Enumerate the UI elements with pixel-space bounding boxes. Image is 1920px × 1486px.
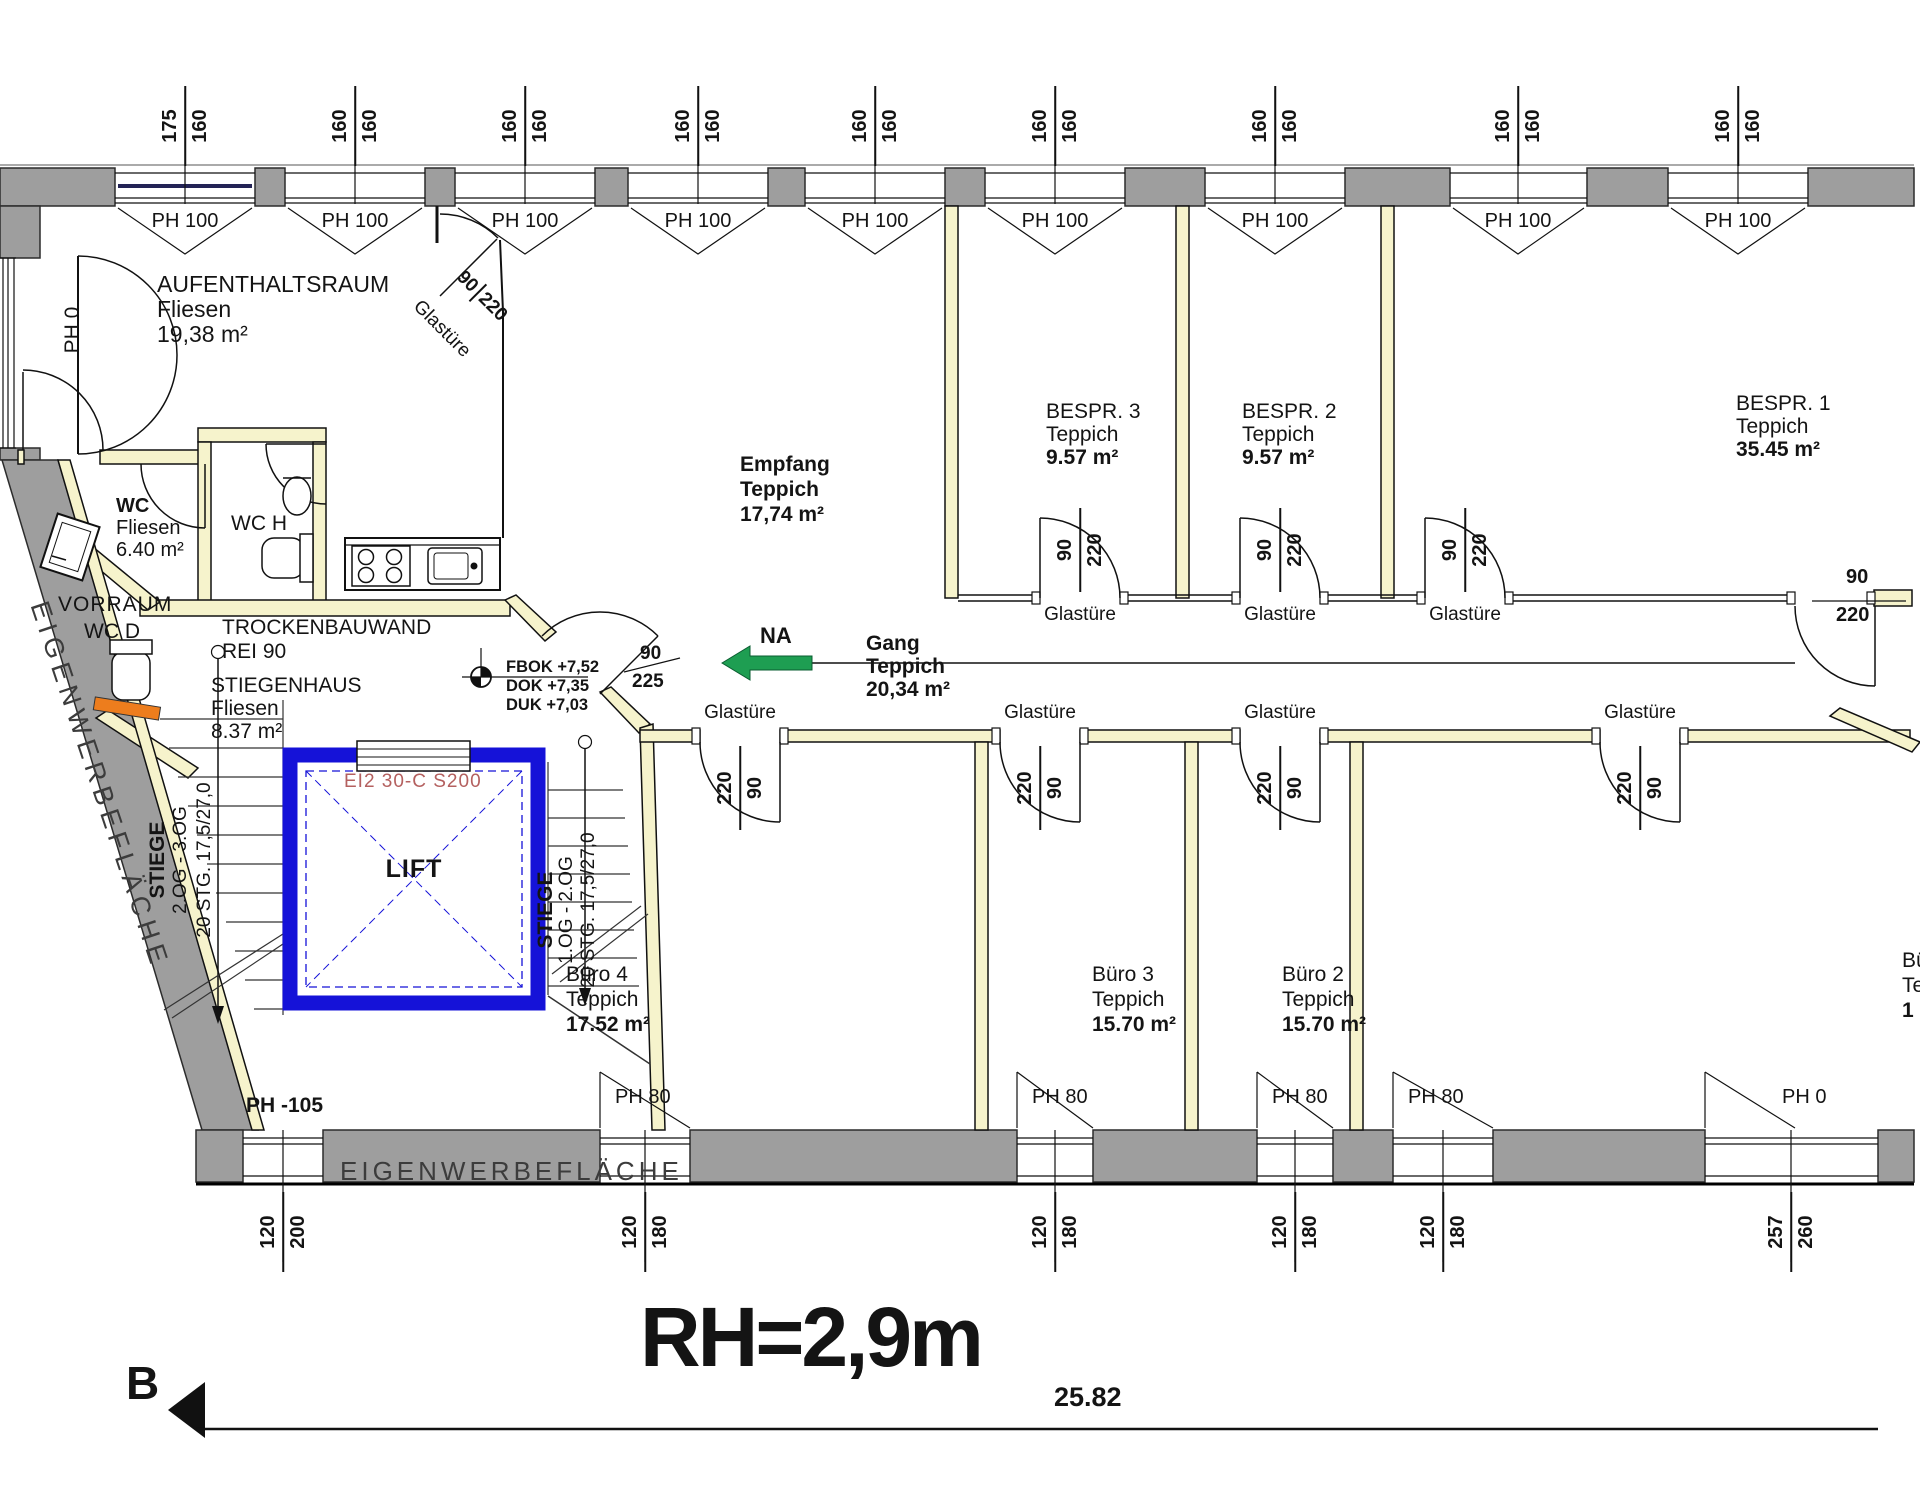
glastuere-label: Glastüre (680, 702, 800, 724)
room-label-buero1-clipped: Büro 1Teppich1 (1902, 948, 1920, 1023)
lift-fire-rating: EI2 30-C S200 (344, 770, 482, 793)
window-dim: 160160 (670, 86, 726, 166)
window-dim: 257260 (1763, 1192, 1819, 1272)
room-label-gang: GangTeppich20,34 m² (866, 632, 950, 701)
door-dim: 22090 (1612, 746, 1668, 830)
window-ph-label: PH 100 (1468, 210, 1568, 233)
window-dim: 160160 (1710, 86, 1766, 166)
vorraum-door (23, 370, 103, 450)
door-dim: 90220 (1437, 508, 1493, 592)
escape-label: NA (760, 624, 792, 647)
window-ph-label: PH -105 (246, 1094, 323, 1118)
stiegenhaus-door-dim-b: 225 (632, 670, 664, 693)
window-ph-label: PH 80 (1032, 1086, 1088, 1109)
glastuere-label: Glastüre (1020, 604, 1140, 626)
trockenbauwand-label: TROCKENBAUWANDREI 90 (222, 616, 431, 664)
stiegenhaus-door-dim-a: 90 (640, 642, 661, 665)
door-dim: 90220 (1052, 508, 1108, 592)
window-ph-label: PH 100 (648, 210, 748, 233)
door-dim: 22090 (1252, 746, 1308, 830)
room-label-bespr2: BESPR. 2Teppich9.57 m² (1242, 400, 1337, 469)
window-dim: 120180 (1027, 1192, 1083, 1272)
room-label-vorraum: VORRAUM (58, 593, 172, 616)
gang-end-dim-b: 220 (1836, 604, 1869, 627)
section-letter: B (126, 1372, 159, 1395)
window-dim: 120180 (617, 1192, 673, 1272)
kitchen (345, 538, 500, 590)
levels-label: FBOK +7,52DOK +7,35DUK +7,03 (506, 658, 599, 715)
stair-right-flight: 1.OG - 2.OG (556, 770, 578, 1050)
window-ph-label: PH 100 (475, 210, 575, 233)
wch-toilet-icon (262, 538, 304, 578)
window-dim: 160160 (847, 86, 903, 166)
window-ph-label: PH 80 (615, 1086, 671, 1109)
entry-door-label: PH 0 (61, 290, 83, 370)
window-ph-label: PH 0 (1782, 1086, 1826, 1109)
window-ph-label: PH 100 (1688, 210, 1788, 233)
glastuere-label: Glastüre (1220, 702, 1340, 724)
room-height-note: RH=2,9m (640, 1292, 981, 1382)
glastuere-label: Glastüre (1405, 604, 1525, 626)
window-dim: 175160 (157, 86, 213, 166)
room-label-empfang: EmpfangTeppich17,74 m² (740, 452, 830, 527)
room-label-bespr3: BESPR. 3Teppich9.57 m² (1046, 400, 1141, 469)
window-ph-label: PH 80 (1408, 1086, 1464, 1109)
glastuere-label: Glastüre (1220, 604, 1340, 626)
room-label-wc-d: WC D (84, 620, 140, 643)
total-dimension: 25.82 (1054, 1386, 1122, 1409)
window-ph-label: PH 100 (135, 210, 235, 233)
room-label-bespr1: BESPR. 1Teppich35.45 m² (1736, 392, 1831, 461)
room-label-wc-h: WC H (231, 512, 287, 535)
door-dim: 22090 (712, 746, 768, 830)
urinal-icon (283, 477, 311, 515)
room-label-buero2: Büro 2Teppich15.70 m² (1282, 962, 1366, 1037)
window-dim: 120180 (1267, 1192, 1323, 1272)
window-dim: 120200 (255, 1192, 311, 1272)
lift-label: LIFT (354, 858, 474, 881)
door-dim: 90220 (1252, 508, 1308, 592)
window-dim: 160160 (327, 86, 383, 166)
window-ph-label: PH 100 (305, 210, 405, 233)
room-label-aufenthaltsraum: AUFENTHALTSRAUMFliesen19,38 m² (157, 272, 389, 347)
window-ph-label: PH 100 (1225, 210, 1325, 233)
stair-right-name: STIEGE (534, 770, 556, 1050)
window-ph-label: PH 80 (1272, 1086, 1328, 1109)
wcd-toilet-icon (112, 652, 150, 700)
window-dim: 160160 (1490, 86, 1546, 166)
entry-sidelight-window (0, 258, 16, 448)
window-dim: 160160 (1247, 86, 1303, 166)
glastuere-label: Glastüre (1580, 702, 1700, 724)
floor-plan: AUFENTHALTSRAUMFliesen19,38 m² WCFliesen… (0, 0, 1920, 1486)
room-label-wc: WCFliesen6.40 m² (116, 495, 184, 561)
section-marker (168, 1382, 1878, 1438)
advert-bottom: EIGENWERBEFLÄCHE (340, 1160, 683, 1183)
window-dim: 160160 (497, 86, 553, 166)
window-dim: 120180 (1415, 1192, 1471, 1272)
stair-left-steps: 20 STG. 17,5/27,0 (194, 710, 216, 1010)
window-ph-label: PH 100 (1005, 210, 1105, 233)
room-label-stiegenhaus: STIEGENHAUSFliesen8.37 m² (211, 674, 362, 743)
window-dim: 160160 (1027, 86, 1083, 166)
lift-door (357, 741, 470, 771)
window-ph-label: PH 100 (825, 210, 925, 233)
gang-end-dim-a: 90 (1846, 566, 1868, 589)
stair-right-steps: 20 STG. 17,5/27,0 (578, 770, 600, 1050)
glastuere-label: Glastüre (980, 702, 1100, 724)
room-label-buero3: Büro 3Teppich15.70 m² (1092, 962, 1176, 1037)
escape-arrow-icon (722, 646, 812, 680)
door-dim: 22090 (1012, 746, 1068, 830)
